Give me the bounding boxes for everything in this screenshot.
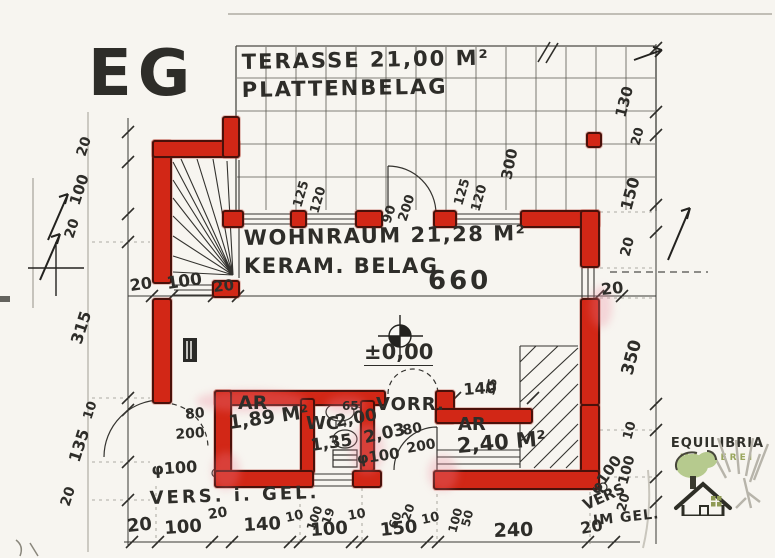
wall-bottom-right-vertical	[580, 404, 600, 474]
dim-bottom-3: 140	[243, 515, 281, 535]
equilibria-logo: EQUILIBRIA MAKLEREI	[660, 438, 775, 463]
house-icon	[676, 484, 730, 516]
dim-bottom-1: 100	[164, 517, 203, 538]
dim-bottom-0: 20	[126, 515, 153, 536]
terrace-area-label: TERASSE 21,00 M²	[242, 48, 490, 73]
dim-mid-2: 20	[212, 278, 234, 295]
dim-door-left-width: 80	[185, 406, 206, 422]
chimney-icon	[183, 338, 197, 362]
level-value: ±0,00	[364, 342, 433, 366]
wall-left-lower	[152, 298, 172, 404]
scan-artifact	[0, 296, 10, 302]
wall-top-a	[222, 210, 244, 228]
dim-bottom-8: 10	[420, 511, 440, 527]
dim-bottom-2: 20	[207, 505, 228, 522]
terrace-finish-label: PLATTENBELAG	[242, 76, 448, 101]
floor-label: EG	[88, 42, 196, 106]
wall-stair-stub	[222, 116, 240, 158]
dim-bottom-4: 10	[284, 509, 304, 525]
dim-door-left-height: 200	[175, 426, 205, 442]
hand-arrow-right	[668, 208, 690, 260]
highlight-smudge	[428, 455, 458, 491]
dim-mid-0: 20	[129, 275, 153, 294]
wall-right-upper	[580, 210, 600, 268]
dim-bottom-6: 10	[347, 507, 367, 523]
living-area-label: WOHNRAUM 21,28 M²	[244, 223, 527, 249]
room-vorr-name: VORR.	[376, 396, 445, 414]
wall-terrace-pillar	[586, 132, 602, 148]
drain-note-left: φ100	[151, 459, 198, 478]
dim-stair-width: 35	[484, 377, 499, 396]
dim-living-width: 660	[428, 268, 491, 294]
floor-plan-scan: EG TERASSE 21,00 M² PLATTENBELAG WOHNRAU…	[0, 0, 775, 558]
dim-bottom-9: 240	[493, 521, 533, 541]
room-wc-niche: 65	[342, 400, 359, 412]
cross-mark-left	[28, 242, 84, 296]
living-finish-label: KERAM. BELAG	[244, 256, 438, 277]
tree-icon	[676, 451, 717, 489]
dim-mid-4: 20	[600, 280, 624, 298]
dim-door-bottom-width: 80	[402, 421, 424, 438]
logo-graphic	[660, 438, 775, 516]
scan-scribble	[16, 540, 38, 556]
hand-arrow-top-right	[634, 47, 662, 60]
hand-arrow-left-2	[40, 234, 60, 280]
wall-bottom-right-horizontal	[433, 470, 600, 490]
dim-mid-1: 100	[166, 271, 204, 293]
wall-left-upper	[152, 140, 172, 284]
